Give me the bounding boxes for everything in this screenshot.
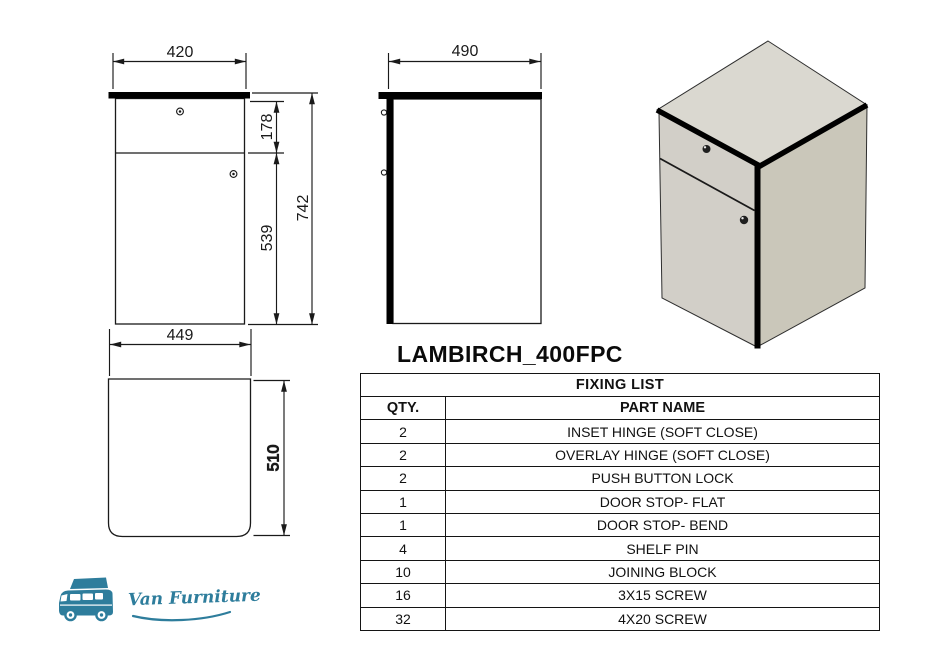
table-header-row: QTY. PART NAME <box>361 396 879 419</box>
qty-cell: 2 <box>361 420 446 442</box>
qty-cell: 2 <box>361 444 446 466</box>
table-row: 2 PUSH BUTTON LOCK <box>361 466 879 489</box>
table-row: 2 INSET HINGE (SOFT CLOSE) <box>361 419 879 442</box>
side-view: 490 <box>379 43 543 324</box>
qty-cell: 32 <box>361 608 446 630</box>
part-name-cell: 4X20 SCREW <box>446 611 879 627</box>
dim-drawer-height: 178 <box>259 114 276 141</box>
table-title-row: FIXING LIST <box>361 374 879 396</box>
top-view: 510 <box>109 379 291 537</box>
isometric-view <box>657 41 867 349</box>
front-view: 420 178 <box>109 44 319 376</box>
table-row: 1 DOOR STOP- FLAT <box>361 490 879 513</box>
qty-cell: 4 <box>361 537 446 559</box>
dim-top-width: 449 <box>167 327 194 344</box>
part-name-cell: 3X15 SCREW <box>446 587 879 603</box>
fixing-list-table: FIXING LIST QTY. PART NAME 2 INSET HINGE… <box>360 373 880 631</box>
iso-door-lock-icon <box>740 216 748 224</box>
qty-header: QTY. <box>361 397 446 419</box>
side-front-edge <box>387 99 394 324</box>
part-name-cell: SHELF PIN <box>446 541 879 557</box>
drawing-sheet: 420 178 <box>0 0 930 660</box>
drawing-title: LAMBIRCH_400FPC <box>397 341 623 368</box>
door-lock-icon <box>230 171 237 178</box>
dim-door-height: 539 <box>259 225 276 252</box>
table-row: 1 DOOR STOP- BEND <box>361 513 879 536</box>
qty-cell: 10 <box>361 561 446 583</box>
qty-cell: 1 <box>361 491 446 513</box>
iso-drawer-lock-icon <box>703 145 711 153</box>
table-row: 4 SHELF PIN <box>361 536 879 559</box>
side-cabinet-body <box>393 99 541 324</box>
table-row: 10 JOINING BLOCK <box>361 560 879 583</box>
front-worktop <box>109 92 251 99</box>
drawer-lock-icon <box>177 108 184 115</box>
qty-cell: 16 <box>361 584 446 606</box>
table-title: FIXING LIST <box>576 377 664 393</box>
brand-name: Van Furniture <box>128 586 261 611</box>
part-name-cell: JOINING BLOCK <box>446 564 879 580</box>
table-row: 32 4X20 SCREW <box>361 607 879 630</box>
side-lock-1 <box>381 110 386 115</box>
front-cabinet-body <box>116 99 245 325</box>
side-worktop <box>379 92 543 99</box>
dim-top-depth: 510 <box>266 445 283 472</box>
brand-underline-swash <box>130 610 234 624</box>
part-name-cell: PUSH BUTTON LOCK <box>446 470 879 486</box>
part-name-cell: OVERLAY HINGE (SOFT CLOSE) <box>446 447 879 463</box>
dim-side-depth: 490 <box>452 43 479 60</box>
qty-cell: 2 <box>361 467 446 489</box>
side-lock-2 <box>381 170 386 175</box>
top-panel-outline <box>109 379 251 537</box>
table-row: 2 OVERLAY HINGE (SOFT CLOSE) <box>361 443 879 466</box>
dim-total-height: 742 <box>295 195 312 222</box>
part-name-header: PART NAME <box>446 400 879 416</box>
dim-front-width: 420 <box>167 44 194 61</box>
part-name-cell: DOOR STOP- FLAT <box>446 494 879 510</box>
qty-cell: 1 <box>361 514 446 536</box>
part-name-cell: INSET HINGE (SOFT CLOSE) <box>446 424 879 440</box>
part-name-cell: DOOR STOP- BEND <box>446 517 879 533</box>
table-row: 16 3X15 SCREW <box>361 583 879 606</box>
campervan-icon <box>54 576 120 624</box>
brand-logo: Van Furniture <box>54 574 244 634</box>
